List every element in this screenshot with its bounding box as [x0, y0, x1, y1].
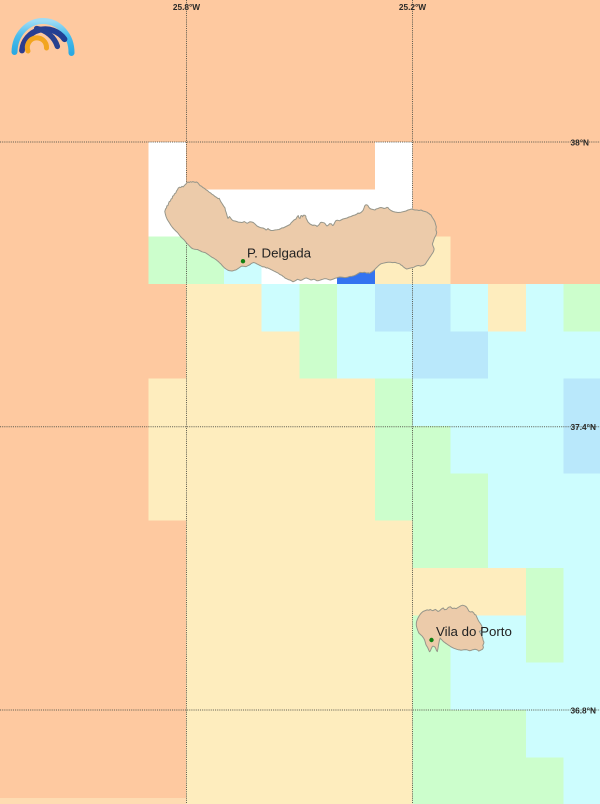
svg-text:36.8°N: 36.8°N: [571, 705, 596, 715]
svg-text:P. Delgada: P. Delgada: [247, 245, 312, 260]
svg-text:37.4°N: 37.4°N: [571, 422, 596, 432]
svg-text:25.8°W: 25.8°W: [173, 2, 200, 12]
svg-text:25.2°W: 25.2°W: [399, 2, 426, 12]
svg-text:Vila do Porto: Vila do Porto: [436, 624, 512, 639]
svg-text:38°N: 38°N: [571, 137, 590, 147]
